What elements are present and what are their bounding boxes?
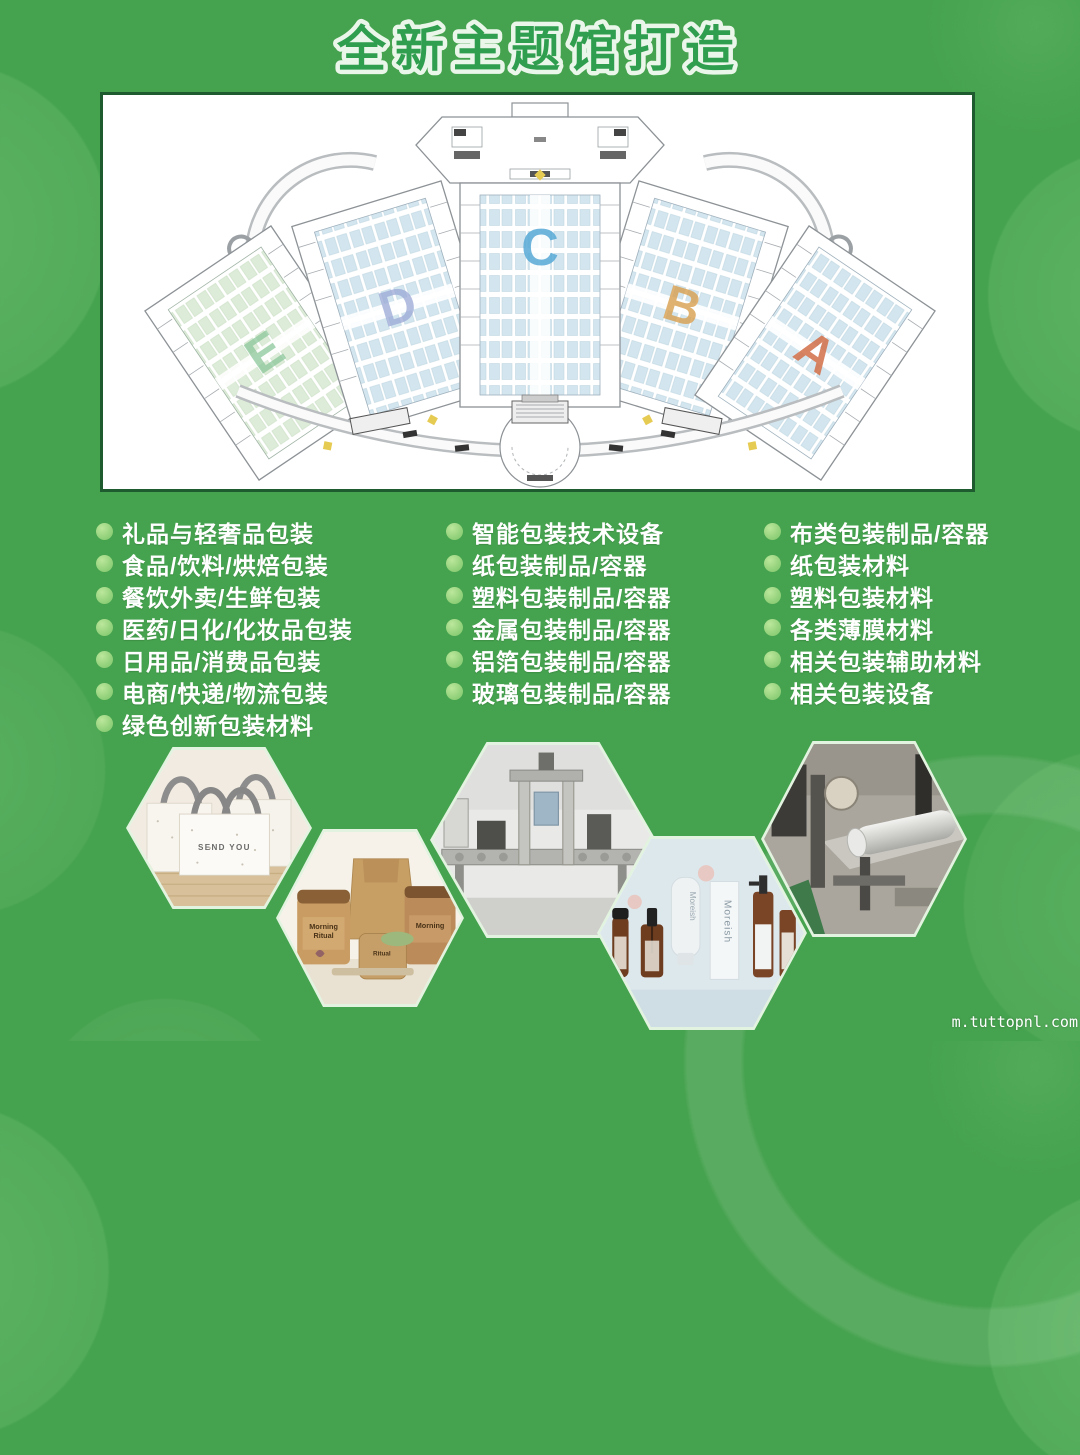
- page-title: 全新主题馆打造: [336, 22, 743, 77]
- central-plaza: [500, 395, 580, 487]
- category-label: 餐饮外卖/生鲜包装: [122, 579, 321, 613]
- bullet-icon: [96, 715, 113, 732]
- bullet-icon: [96, 619, 113, 636]
- category-label: 玻璃包装制品/容器: [472, 675, 671, 709]
- bullet-icon: [446, 587, 463, 604]
- category-label: 金属包装制品/容器: [472, 611, 671, 645]
- bullet-icon: [446, 651, 463, 668]
- jar-brand-line1b: Morning: [416, 921, 445, 930]
- list-item: 各类薄膜材料: [764, 616, 1074, 639]
- category-label: 布类包装制品/容器: [790, 515, 989, 549]
- list-item: 相关包装辅助材料: [764, 648, 1074, 671]
- bullet-icon: [446, 555, 463, 572]
- list-item: 食品/饮料/烘焙包装: [96, 552, 436, 575]
- category-label: 铝箔包装制品/容器: [472, 643, 671, 677]
- bullet-icon: [764, 587, 781, 604]
- category-label: 各类薄膜材料: [790, 611, 934, 645]
- watermark: m.tuttopnl.com: [952, 1013, 1078, 1031]
- film-machine-photo: [764, 744, 964, 934]
- cosmetic-tube-brand: Moreish: [688, 892, 697, 921]
- list-item: 金属包装制品/容器: [446, 616, 756, 639]
- jar-brand-line1: Morning: [309, 922, 338, 931]
- category-label: 食品/饮料/烘焙包装: [122, 547, 329, 581]
- category-label: 相关包装设备: [790, 675, 934, 709]
- hall-c-letter: C: [521, 219, 559, 277]
- list-item: 绿色创新包装材料: [96, 712, 436, 735]
- category-label: 相关包装辅助材料: [790, 643, 982, 677]
- bullet-icon: [764, 619, 781, 636]
- photo-hex-kraft-jars: Morning Ritual Morning Ritual: [276, 829, 464, 1007]
- title-svg: 全新主题馆打造: [0, 12, 1080, 84]
- category-column-3: 布类包装制品/容器 纸包装材料 塑料包装材料 各类薄膜材料 相关包装辅助材料 相…: [764, 520, 1074, 712]
- header: 全新主题馆打造: [0, 12, 1080, 89]
- list-item: 塑料包装材料: [764, 584, 1074, 607]
- cosmetic-box-brand: Moreish: [721, 900, 732, 943]
- bullet-icon: [96, 555, 113, 572]
- category-label: 纸包装制品/容器: [472, 547, 647, 581]
- bullet-icon: [764, 555, 781, 572]
- category-label: 绿色创新包装材料: [122, 707, 314, 741]
- list-item: 医药/日化/化妆品包装: [96, 616, 436, 639]
- jar-brand-line2b: Ritual: [373, 950, 391, 957]
- bullet-icon: [446, 619, 463, 636]
- list-item: 餐饮外卖/生鲜包装: [96, 584, 436, 607]
- list-item: 日用品/消费品包装: [96, 648, 436, 671]
- bullet-icon: [764, 683, 781, 700]
- list-item: 相关包装设备: [764, 680, 1074, 703]
- bullet-icon: [96, 651, 113, 668]
- category-label: 医药/日化/化妆品包装: [122, 611, 353, 645]
- list-item: 电商/快递/物流包装: [96, 680, 436, 703]
- photo-hex-gift-bags: SEND YOU: [126, 747, 312, 909]
- category-column-1: 礼品与轻奢品包装 食品/饮料/烘焙包装 餐饮外卖/生鲜包装 医药/日化/化妆品包…: [96, 520, 436, 744]
- category-label: 纸包装材料: [790, 547, 910, 581]
- category-label: 电商/快递/物流包装: [122, 675, 329, 709]
- hall-c: C: [460, 169, 620, 420]
- jar-brand-line2: Ritual: [313, 931, 333, 940]
- bullet-icon: [96, 587, 113, 604]
- list-item: 塑料包装制品/容器: [446, 584, 756, 607]
- list-item: 纸包装制品/容器: [446, 552, 756, 575]
- list-item: 布类包装制品/容器: [764, 520, 1074, 543]
- list-item: 纸包装材料: [764, 552, 1074, 575]
- list-item: 智能包装技术设备: [446, 520, 756, 543]
- bullet-icon: [446, 683, 463, 700]
- list-item: 礼品与轻奢品包装: [96, 520, 436, 543]
- kraft-jars-photo: Morning Ritual Morning Ritual: [279, 832, 461, 1004]
- floor-plan: E D B A: [103, 95, 972, 489]
- bullet-icon: [96, 683, 113, 700]
- category-label: 塑料包装材料: [790, 579, 934, 613]
- list-item: 铝箔包装制品/容器: [446, 648, 756, 671]
- floor-plan-panel: E D B A: [100, 92, 975, 492]
- bullet-icon: [446, 523, 463, 540]
- category-label: 日用品/消费品包装: [122, 643, 321, 677]
- category-label: 智能包装技术设备: [472, 515, 664, 549]
- category-label: 礼品与轻奢品包装: [122, 515, 314, 549]
- bag-text: SEND YOU: [198, 843, 251, 852]
- gift-bags-photo: SEND YOU: [129, 750, 309, 906]
- bullet-icon: [764, 523, 781, 540]
- bullet-icon: [96, 523, 113, 540]
- category-label: 塑料包装制品/容器: [472, 579, 671, 613]
- category-column-2: 智能包装技术设备 纸包装制品/容器 塑料包装制品/容器 金属包装制品/容器 铝箔…: [446, 520, 756, 712]
- list-item: 玻璃包装制品/容器: [446, 680, 756, 703]
- bullet-icon: [764, 651, 781, 668]
